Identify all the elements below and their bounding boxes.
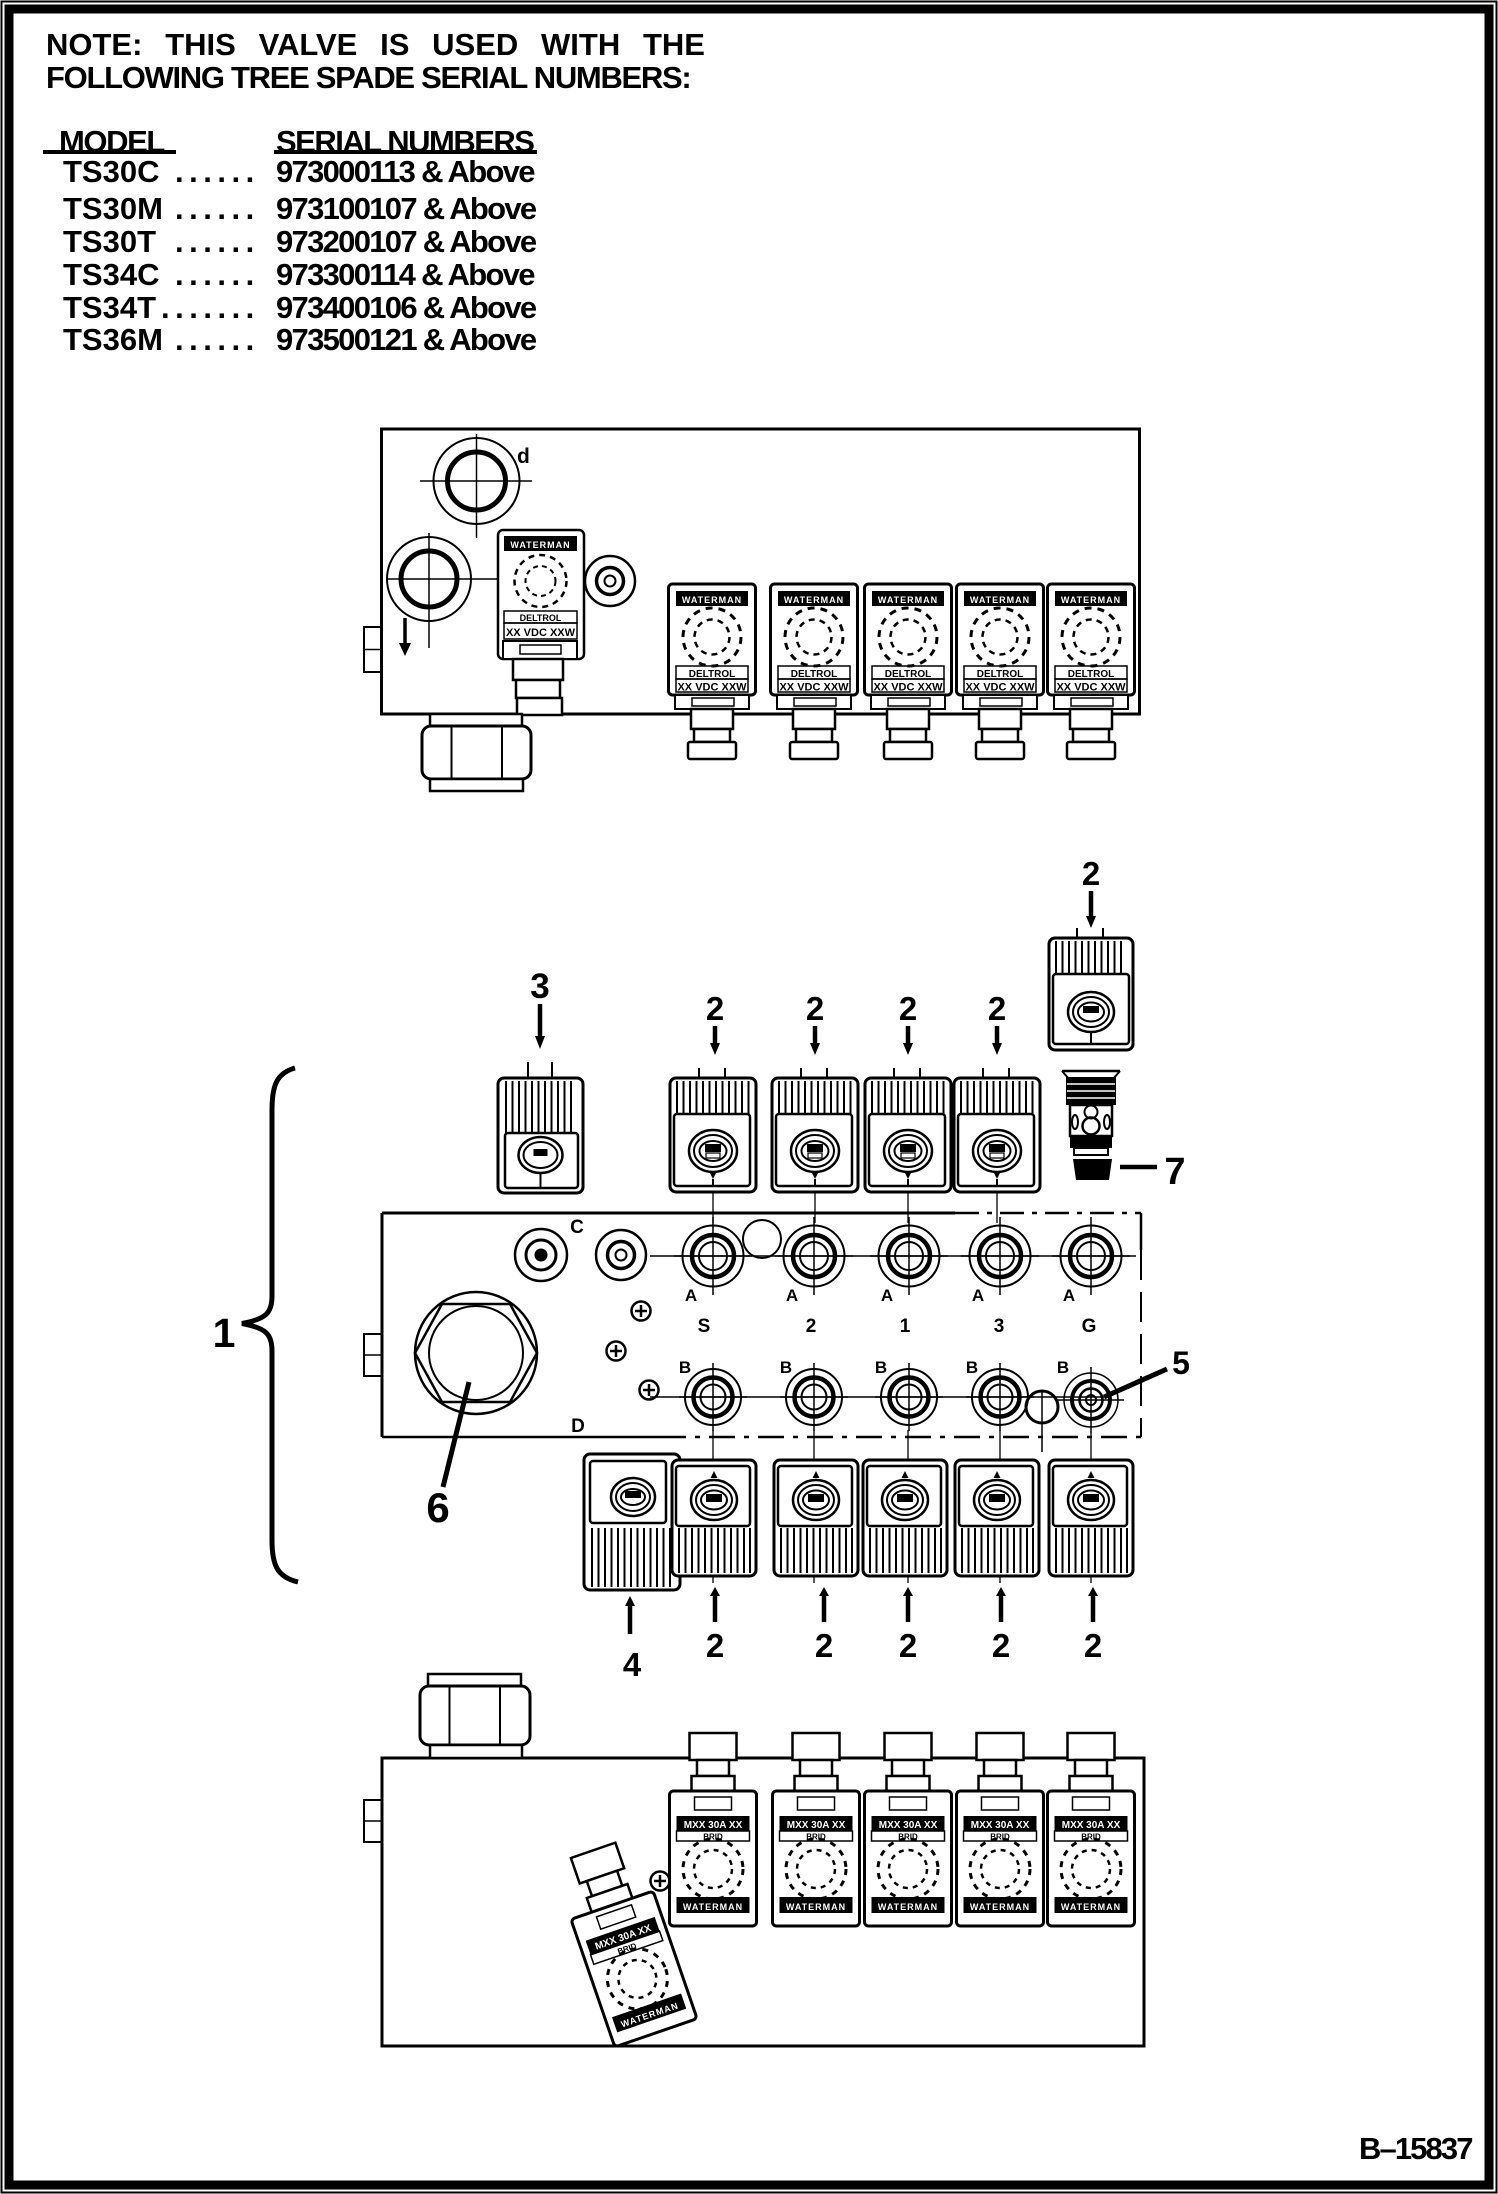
svg-text:A: A bbox=[1063, 1286, 1075, 1305]
svg-text:3: 3 bbox=[530, 967, 549, 1006]
svg-text:2: 2 bbox=[1082, 855, 1100, 892]
svg-text:D: D bbox=[571, 1416, 585, 1437]
svg-text:2: 2 bbox=[899, 1627, 917, 1664]
svg-text:3: 3 bbox=[994, 1316, 1005, 1337]
svg-text:d: d bbox=[517, 445, 530, 468]
svg-text:2: 2 bbox=[706, 990, 724, 1027]
svg-text:2: 2 bbox=[899, 990, 917, 1027]
svg-text:XX VDC XXW: XX VDC XXW bbox=[506, 627, 576, 639]
svg-text:B: B bbox=[780, 1358, 792, 1377]
svg-text:2: 2 bbox=[1084, 1627, 1102, 1664]
svg-text:6: 6 bbox=[426, 1484, 449, 1531]
svg-text:2: 2 bbox=[806, 1316, 817, 1337]
svg-text:B: B bbox=[875, 1358, 887, 1377]
svg-text:A: A bbox=[972, 1286, 984, 1305]
svg-text:5: 5 bbox=[1172, 1345, 1190, 1381]
svg-text:B: B bbox=[679, 1358, 691, 1377]
svg-text:B: B bbox=[966, 1358, 978, 1377]
svg-text:7: 7 bbox=[1164, 1151, 1185, 1193]
svg-text:A: A bbox=[881, 1286, 893, 1305]
svg-text:2: 2 bbox=[988, 990, 1006, 1027]
svg-text:S: S bbox=[698, 1316, 711, 1337]
svg-text:2: 2 bbox=[992, 1627, 1010, 1664]
svg-text:B: B bbox=[1057, 1358, 1069, 1377]
svg-text:DELTROL: DELTROL bbox=[520, 613, 562, 623]
svg-text:2: 2 bbox=[815, 1627, 833, 1664]
svg-text:A: A bbox=[685, 1286, 697, 1305]
svg-text:1: 1 bbox=[213, 1310, 236, 1356]
svg-text:2: 2 bbox=[706, 1627, 724, 1664]
svg-text:1: 1 bbox=[900, 1316, 911, 1337]
svg-text:WATERMAN: WATERMAN bbox=[510, 540, 570, 550]
svg-text:A: A bbox=[786, 1286, 798, 1305]
svg-text:C: C bbox=[570, 1217, 584, 1238]
svg-text:G: G bbox=[1082, 1316, 1097, 1337]
svg-text:2: 2 bbox=[806, 990, 824, 1027]
svg-text:4: 4 bbox=[623, 1646, 642, 1683]
